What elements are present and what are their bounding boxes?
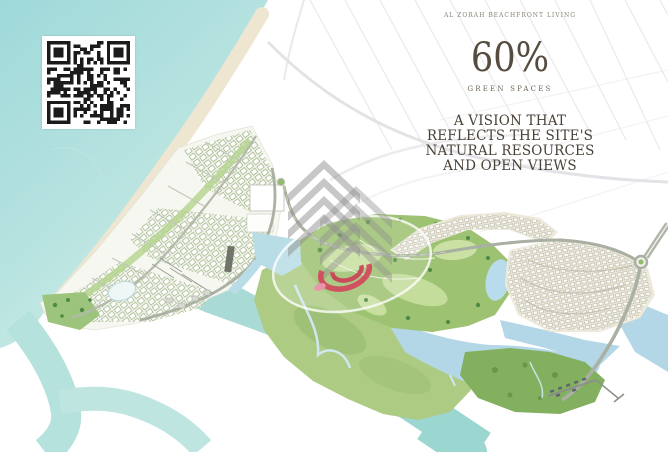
- residential-cluster-east: [505, 238, 655, 332]
- headline-line: REFLECTS THE SITE'S: [418, 129, 602, 144]
- green-space-stat-label: GREEN SPACES: [425, 85, 595, 93]
- jetty: [596, 380, 624, 402]
- green-space-stat-value: 60%: [435, 38, 585, 78]
- vision-headline: A VISION THAT REFLECTS THE SITE'S NATURA…: [418, 114, 602, 174]
- event-plaza: [247, 179, 285, 233]
- qr-code: [42, 36, 135, 129]
- headline-line: NATURAL RESOURCES: [418, 144, 602, 159]
- channel-branch: [60, 399, 202, 448]
- west-channel: [18, 320, 66, 452]
- headline-line: AND OPEN VIEWS: [418, 159, 602, 174]
- qr-code-modules: [47, 41, 130, 124]
- eyebrow-label: AL ZORAH BEACHFRONT LIVING: [425, 12, 595, 19]
- headline-line: A VISION THAT: [418, 114, 602, 129]
- masterplan-brochure-page: AL ZORAH BEACHFRONT LIVING 60% GREEN SPA…: [0, 0, 668, 452]
